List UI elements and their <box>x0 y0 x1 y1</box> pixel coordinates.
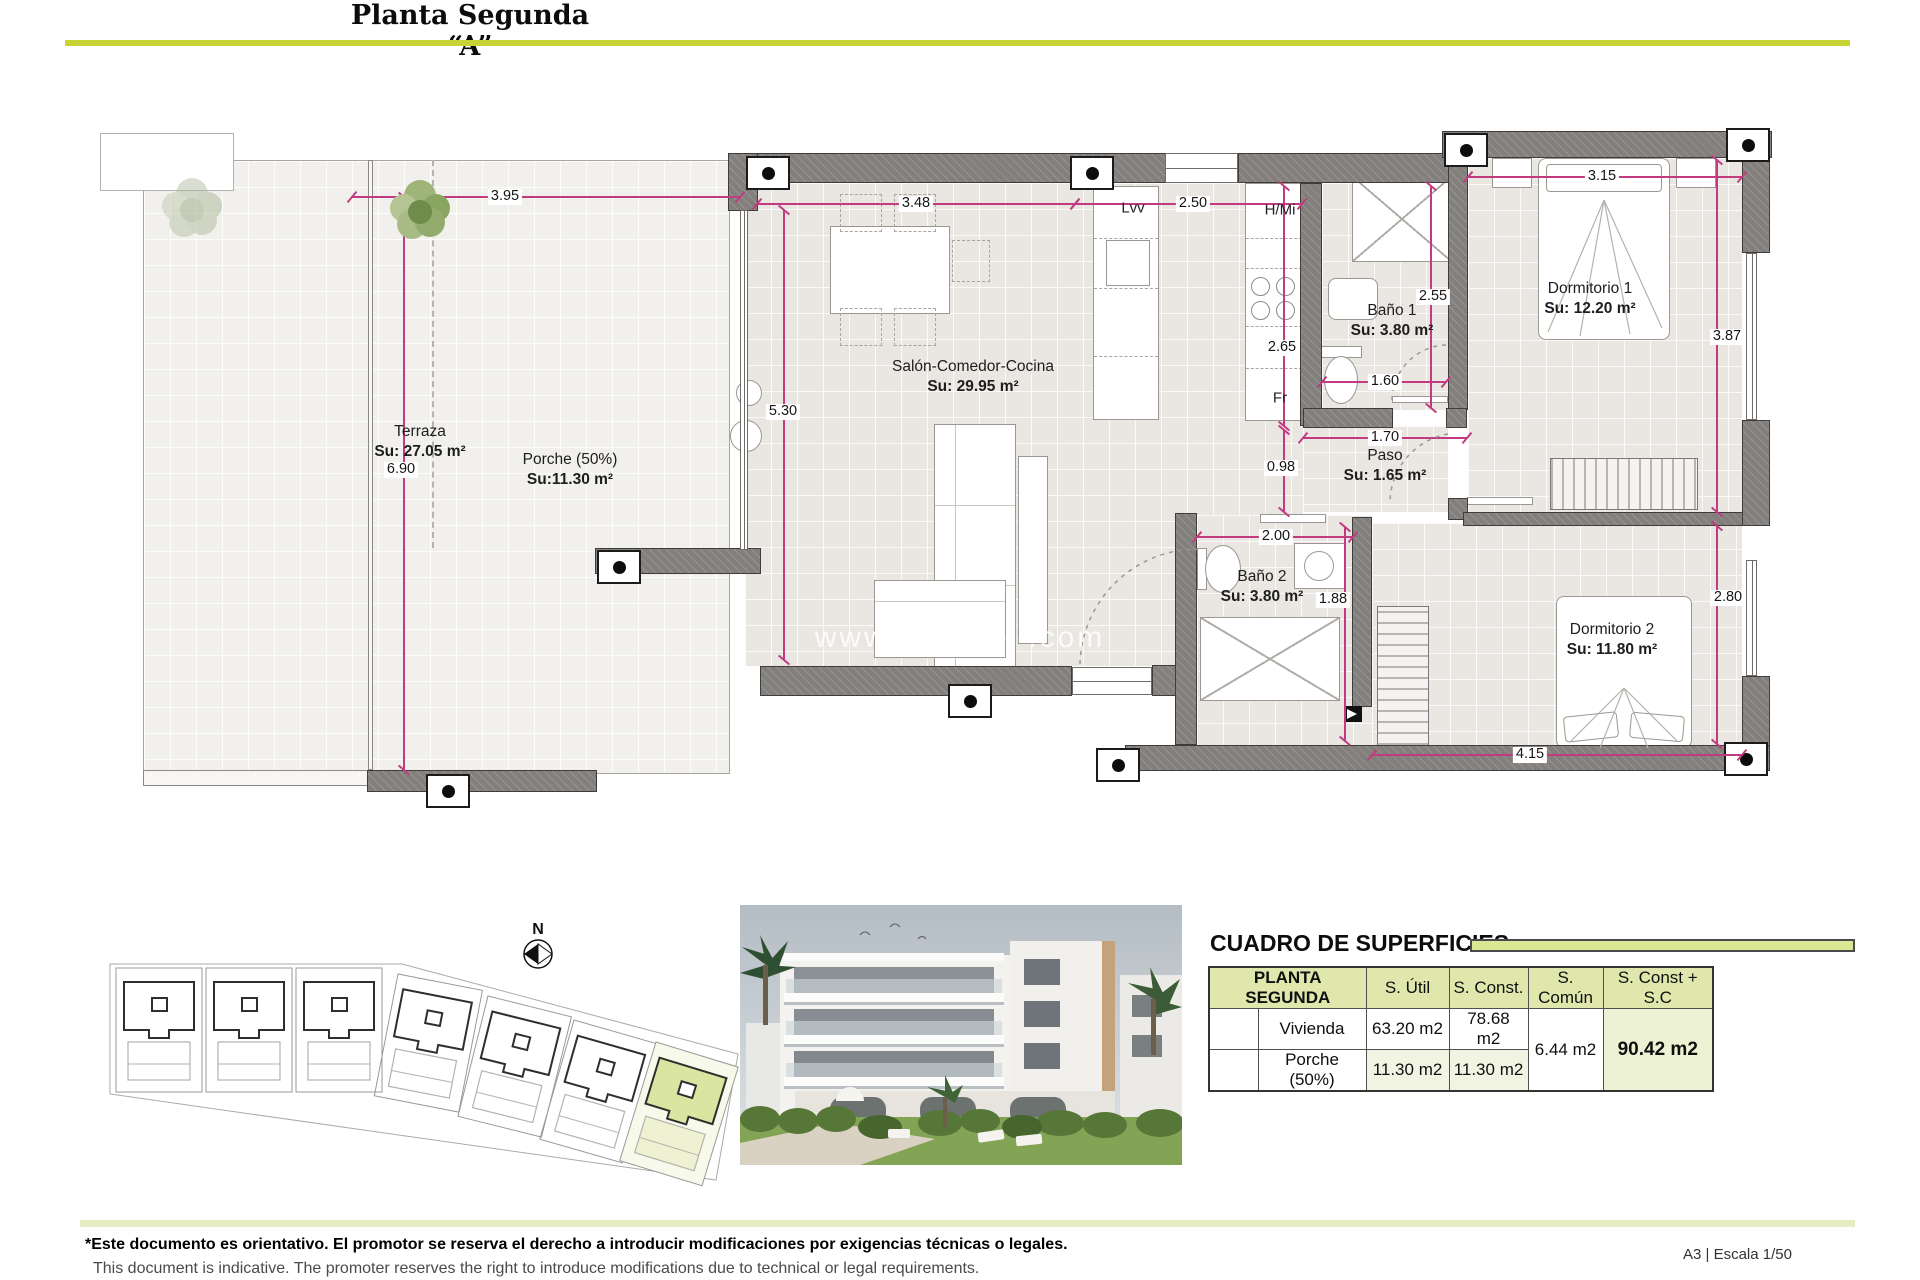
room-area: Su: 3.80 m² <box>1221 587 1304 607</box>
burner-icon <box>1276 301 1295 320</box>
column-marker <box>426 774 470 808</box>
room-label-terraza: Terraza Su: 27.05 m² <box>374 422 465 462</box>
counter-divider <box>1094 288 1158 289</box>
room-label-porche: Porche (50%) Su:11.30 m² <box>523 450 618 490</box>
room-name: Dormitorio 2 <box>1567 620 1657 640</box>
room-area: Su: 27.05 m² <box>374 442 465 462</box>
burner-icon <box>1276 277 1295 296</box>
dimension-label: 2.00 <box>1259 529 1293 545</box>
chair <box>840 194 882 232</box>
shelf <box>1260 514 1326 523</box>
window <box>1746 560 1757 676</box>
col-header: PLANTA SEGUNDA <box>1209 967 1366 1009</box>
entrance-arrow-icon <box>1344 706 1362 722</box>
disclaimer-en: This document is indicative. The promote… <box>93 1260 979 1278</box>
wall-segment <box>1175 513 1197 745</box>
shower-tray <box>1200 617 1340 701</box>
burner-icon <box>1251 301 1270 320</box>
door-leaf <box>1392 396 1448 403</box>
room-area: Su: 3.80 m² <box>1351 321 1434 341</box>
room-name: Salón-Comedor-Cocina <box>892 357 1054 377</box>
counter-divider <box>1246 326 1302 327</box>
counter-divider <box>1094 356 1158 357</box>
const-value: 78.68 m2 <box>1449 1009 1528 1050</box>
kitchen-counter <box>1093 186 1159 420</box>
col-header: S. Útil <box>1366 967 1449 1009</box>
watermark: www.··········.com <box>815 621 1106 655</box>
column-marker <box>948 684 992 718</box>
disclaimer-es: *Este documento es orientativo. El promo… <box>85 1236 1068 1254</box>
terraza-floor <box>143 160 730 774</box>
nightstand <box>1492 158 1532 188</box>
kitchen-sink <box>1106 240 1150 286</box>
wall-segment <box>1448 158 1468 410</box>
room-label-dorm2: Dormitorio 2 Su: 11.80 m² <box>1567 620 1657 660</box>
col-header: S. Const + S.C <box>1603 967 1713 1009</box>
dining-table <box>830 226 950 314</box>
window <box>1165 153 1238 183</box>
column-marker <box>746 156 790 190</box>
room-name: Terraza <box>374 422 465 442</box>
comun-value: 6.44 m2 <box>1528 1009 1603 1092</box>
building-render-image <box>740 905 1182 1165</box>
plan-sheet: { "header": { "title": "Planta Segunda “… <box>0 0 1920 1280</box>
col-header: S. Común <box>1528 967 1603 1009</box>
row-label: Porche (50%) <box>1258 1050 1366 1092</box>
counter-divider <box>1246 238 1302 239</box>
wall-segment <box>1446 408 1467 428</box>
counter-divider <box>1246 268 1302 269</box>
empty-cell <box>1209 1009 1258 1050</box>
empty-cell <box>1209 1050 1258 1092</box>
column-marker <box>1444 133 1488 167</box>
site-plan <box>100 952 740 1187</box>
room-area: Su: 12.20 m² <box>1544 299 1635 319</box>
wall-segment <box>1303 408 1393 428</box>
wall-segment <box>1742 420 1770 526</box>
room-area: Su: 1.65 m² <box>1344 466 1427 486</box>
room-name: Baño 2 <box>1221 567 1304 587</box>
room-name: Dormitorio 1 <box>1544 279 1635 299</box>
dimension-line <box>403 197 405 770</box>
util-value: 63.20 m2 <box>1366 1009 1449 1050</box>
col-header: S. Const. <box>1449 967 1528 1009</box>
dimension-label: 1.60 <box>1368 374 1402 390</box>
dimension-label: 4.15 <box>1513 747 1547 763</box>
compass-label: N <box>532 921 544 938</box>
room-name: Baño 1 <box>1351 301 1434 321</box>
surfaces-heading: CUADRO DE SUPERFICIES <box>1210 930 1509 957</box>
dimension-line <box>1344 527 1346 741</box>
highlighted-unit <box>620 1042 738 1186</box>
column-marker <box>1070 156 1114 190</box>
wardrobe <box>1377 606 1429 746</box>
room-label-salon: Salón-Comedor-Cocina Su: 29.95 m² <box>892 357 1054 397</box>
util-value: 11.30 m2 <box>1366 1050 1449 1092</box>
row-label: Vivienda <box>1258 1009 1366 1050</box>
chair <box>952 240 990 282</box>
column-marker <box>597 550 641 584</box>
terraza-low-edge <box>143 770 369 786</box>
toilet <box>1324 356 1358 404</box>
wall-segment <box>367 770 597 792</box>
footer-accent-rule <box>80 1220 1855 1227</box>
washbasin <box>1304 551 1334 581</box>
dimension-line <box>783 210 785 660</box>
dishwasher-label: Lvv <box>1121 200 1144 217</box>
dimension-label: 1.70 <box>1368 430 1402 446</box>
column-marker <box>1726 128 1770 162</box>
dimension-label: 3.95 <box>488 189 522 205</box>
fridge-label: Fr <box>1273 390 1287 407</box>
room-area: Su: 11.80 m² <box>1567 640 1657 660</box>
surfaces-accent-bar <box>1470 939 1855 952</box>
wall-segment <box>760 666 1072 696</box>
terrace-door <box>1072 667 1152 695</box>
room-name: Paso <box>1344 446 1427 466</box>
wall-segment <box>1442 131 1772 158</box>
room-label-bano1: Baño 1 Su: 3.80 m² <box>1351 301 1434 341</box>
dimension-label: 1.88 <box>1316 592 1350 608</box>
wall-segment <box>1125 745 1770 771</box>
wall-segment <box>1300 183 1322 426</box>
page-title: Planta Segunda “A” <box>340 0 600 62</box>
tv-cabinet <box>1018 456 1048 644</box>
sheet-info: A3 | Escala 1/50 <box>1683 1246 1792 1263</box>
nightstand <box>1676 158 1716 188</box>
counter-divider <box>1094 238 1158 239</box>
door-leaf <box>1467 497 1533 505</box>
const-value: 11.30 m2 <box>1449 1050 1528 1092</box>
table-row: Vivienda 63.20 m2 78.68 m2 6.44 m2 90.42… <box>1209 1009 1713 1050</box>
dimension-label: 3.15 <box>1585 169 1619 185</box>
wall-segment <box>1463 512 1743 526</box>
room-label-paso: Paso Su: 1.65 m² <box>1344 446 1427 486</box>
dimension-label: 0.98 <box>1264 460 1298 476</box>
surfaces-table: PLANTA SEGUNDA S. Útil S. Const. S. Comú… <box>1208 966 1714 1092</box>
wall-segment <box>1352 517 1372 707</box>
chair <box>840 308 882 346</box>
room-name: Porche (50%) <box>523 450 618 470</box>
room-label-bano2: Baño 2 Su: 3.80 m² <box>1221 567 1304 607</box>
room-label-dorm1: Dormitorio 1 Su: 12.20 m² <box>1544 279 1635 319</box>
room-area: Su:11.30 m² <box>523 470 618 490</box>
dimension-label: 6.90 <box>384 462 418 478</box>
dimension-line <box>1716 526 1718 744</box>
dimension-label: 3.87 <box>1710 329 1744 345</box>
window <box>1746 253 1757 420</box>
chair <box>894 308 936 346</box>
dimension-label: 3.48 <box>899 196 933 212</box>
dimension-label: 2.50 <box>1176 196 1210 212</box>
bed-pillow <box>1629 712 1685 743</box>
counter-divider <box>1246 368 1302 369</box>
room-area: Su: 29.95 m² <box>892 377 1054 397</box>
wardrobe <box>1550 458 1698 510</box>
table-header-row: PLANTA SEGUNDA S. Útil S. Const. S. Comú… <box>1209 967 1713 1009</box>
wall-segment <box>1238 153 1450 183</box>
sliding-glass-door <box>740 210 748 550</box>
porche-boundary-dashed <box>432 160 434 548</box>
total-value: 90.42 m2 <box>1603 1009 1713 1092</box>
dimension-label: 2.80 <box>1711 590 1745 606</box>
title-accent-rule <box>65 40 1850 46</box>
terraza-step-line <box>368 160 373 770</box>
dimension-label: 5.30 <box>766 404 800 420</box>
terraza-notch <box>100 133 234 191</box>
column-marker <box>1724 742 1768 776</box>
dimension-line <box>352 196 740 198</box>
dimension-line <box>1372 754 1742 756</box>
column-marker <box>1096 748 1140 782</box>
oven-micro-label: H/Mi <box>1265 202 1296 219</box>
burner-icon <box>1251 277 1270 296</box>
dimension-label: 2.65 <box>1265 340 1299 356</box>
